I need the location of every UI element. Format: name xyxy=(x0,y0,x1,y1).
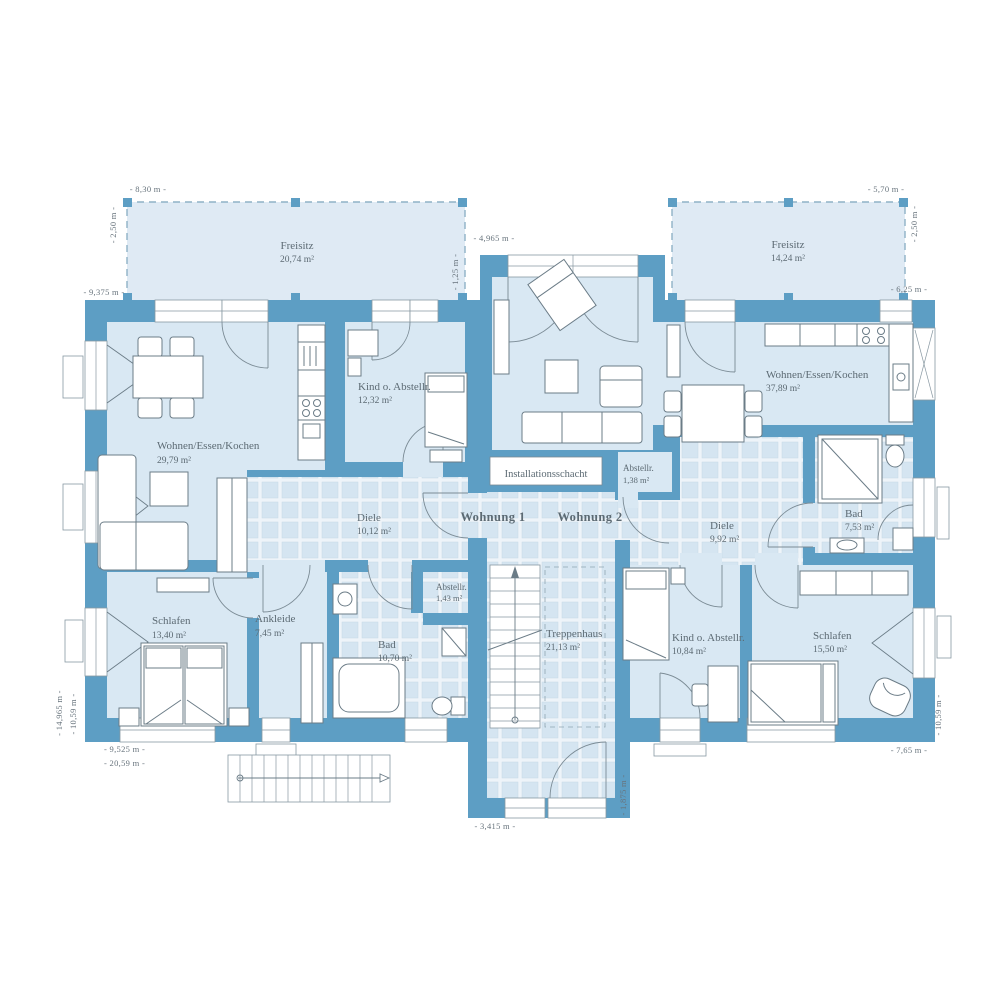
dim-right-wing-height: - 10,59 m - xyxy=(933,694,943,735)
bed-w2-schlafen xyxy=(748,661,838,725)
shelf-w1-bad xyxy=(442,628,466,656)
label-w2-bad: Bad xyxy=(845,508,863,520)
toilet-w1 xyxy=(432,697,465,715)
armchair-w2 xyxy=(600,366,642,407)
label-w1-ankleide: Ankleide xyxy=(255,613,295,625)
window-right-bad xyxy=(913,478,935,537)
area-w2-diele: 9,92 m² xyxy=(710,535,739,545)
label-w1-kind: Kind o. Abstellr. xyxy=(358,381,431,393)
area-w2-living: 37,89 m² xyxy=(766,384,800,394)
window-right-schlafen xyxy=(913,608,935,678)
shelf-w2-living xyxy=(667,325,680,377)
sideboard-w2-schlafen xyxy=(800,571,908,595)
dim-top-center-offset: - 1,25 m - xyxy=(450,254,460,291)
area-treppenhaus: 21,13 m² xyxy=(546,643,580,653)
kitchen-w1 xyxy=(298,325,325,460)
area-w1-diele: 10,12 m² xyxy=(357,527,391,537)
dim-bottom-entrance-depth: - 1,875 m - xyxy=(618,774,628,815)
area-freisitz-right: 14,24 m² xyxy=(771,254,805,264)
label-w2-schlafen: Schlafen xyxy=(813,630,852,642)
sofa-w2 xyxy=(522,412,642,443)
window-top-living-w1 xyxy=(155,300,222,322)
label-w2-living: Wohnen/Essen/Kochen xyxy=(766,369,869,381)
label-w1-diele: Diele xyxy=(357,512,381,524)
label-freisitz-right: Freisitz xyxy=(772,239,805,251)
sink-w1 xyxy=(333,584,357,614)
area-w2-bad: 7,53 m² xyxy=(845,523,874,533)
area-w2-abstell: 1,38 m² xyxy=(623,475,650,485)
door-bottom-ankleide xyxy=(262,718,290,742)
entrance-sidelight xyxy=(505,798,545,818)
shower-w2 xyxy=(818,435,882,503)
installation-shaft-label: Installationsschacht xyxy=(505,469,588,480)
terrace-door-w2 xyxy=(685,300,735,322)
dim-top-center-width: - 4,965 m - xyxy=(473,233,514,243)
window-top-kind-w1 xyxy=(410,300,438,322)
label-w2-kind: Kind o. Abstellr. xyxy=(672,632,745,644)
sink-w2 xyxy=(830,538,864,553)
dim-top-right-depth: - 2,50 m - xyxy=(909,206,919,243)
terrace-door-w1 xyxy=(222,300,268,322)
dim-bottom-total-width: - 20,59 m - xyxy=(104,758,145,768)
label-wohnung-1: Wohnung 1 xyxy=(460,510,525,524)
dim-top-right-width: - 5,70 m - xyxy=(868,184,905,194)
label-freisitz-left: Freisitz xyxy=(281,240,314,252)
area-w1-abstell: 1,43 m² xyxy=(436,593,463,603)
dim-left-wing-height: - 10,59 m - xyxy=(68,693,78,734)
coffee-table-w1 xyxy=(150,472,188,506)
dim-bottom-right-width: - 7,65 m - xyxy=(891,745,928,755)
installation-shaft: Installationsschacht xyxy=(490,457,602,485)
window-top-kitchen-w2 xyxy=(880,300,912,322)
dim-left-upper-width: - 9,375 m - xyxy=(83,287,124,297)
label-w2-diele: Diele xyxy=(710,520,734,532)
window-left-living-1 xyxy=(85,341,107,410)
toilet-w2 xyxy=(886,435,904,467)
tv-board-w2 xyxy=(494,300,509,374)
closet-w1-ankleide xyxy=(301,643,323,723)
coffee-table-w2 xyxy=(545,360,578,393)
window-left-schlafen xyxy=(85,608,107,676)
dim-right-upper-width: - 6,25 m - xyxy=(891,284,928,294)
dim-top-left-depth: - 2,50 m - xyxy=(108,207,118,244)
area-w1-bad: 10,70 m² xyxy=(378,654,412,664)
window-bottom-bad-w1 xyxy=(405,718,447,742)
dim-bottom-left-width: - 9,525 m - xyxy=(104,744,145,754)
dim-bottom-entrance-width: - 3,415 m - xyxy=(474,821,515,831)
wardrobe-w1-diele xyxy=(217,478,247,572)
label-w1-bad: Bad xyxy=(378,639,396,651)
label-wohnung-2: Wohnung 2 xyxy=(557,510,622,524)
label-w2-abstell: Abstellr. xyxy=(623,463,654,473)
floor-w2-diele-b xyxy=(680,437,803,565)
area-freisitz-left: 20,74 m² xyxy=(280,255,314,265)
label-treppenhaus: Treppenhaus xyxy=(546,628,602,640)
door-bottom-kind-w2 xyxy=(660,718,700,742)
bathtub-w1 xyxy=(333,658,405,718)
label-w1-schlafen: Schlafen xyxy=(152,615,191,627)
area-w1-ankleide: 7,45 m² xyxy=(255,629,284,639)
window-right-kitchen xyxy=(913,328,935,400)
dim-left-total-height: - 14,965 m - xyxy=(54,690,64,736)
cabinet-w2-bad xyxy=(893,528,913,550)
area-w2-kind: 10,84 m² xyxy=(672,647,706,657)
label-w1-abstell: Abstellr. xyxy=(436,582,467,592)
area-w2-schlafen: 15,50 m² xyxy=(813,645,847,655)
area-w1-living: 29,79 m² xyxy=(157,456,191,466)
label-w1-living: Wohnen/Essen/Kochen xyxy=(157,440,260,452)
floor-plan-drawing: Installationsschacht xyxy=(0,0,1000,1000)
floor-w2-diele-a xyxy=(630,500,680,565)
dim-top-left-width: - 8,30 m - xyxy=(130,184,167,194)
floor-plan-page: Installationsschacht xyxy=(0,0,1000,1000)
terrace-door-w1-kind xyxy=(372,300,410,322)
area-w1-schlafen: 13,40 m² xyxy=(152,631,186,641)
area-w1-kind: 12,32 m² xyxy=(358,396,392,406)
staircase-exterior xyxy=(228,755,390,802)
dresser-w1-schlafen xyxy=(157,578,209,592)
entrance-door xyxy=(548,798,606,818)
